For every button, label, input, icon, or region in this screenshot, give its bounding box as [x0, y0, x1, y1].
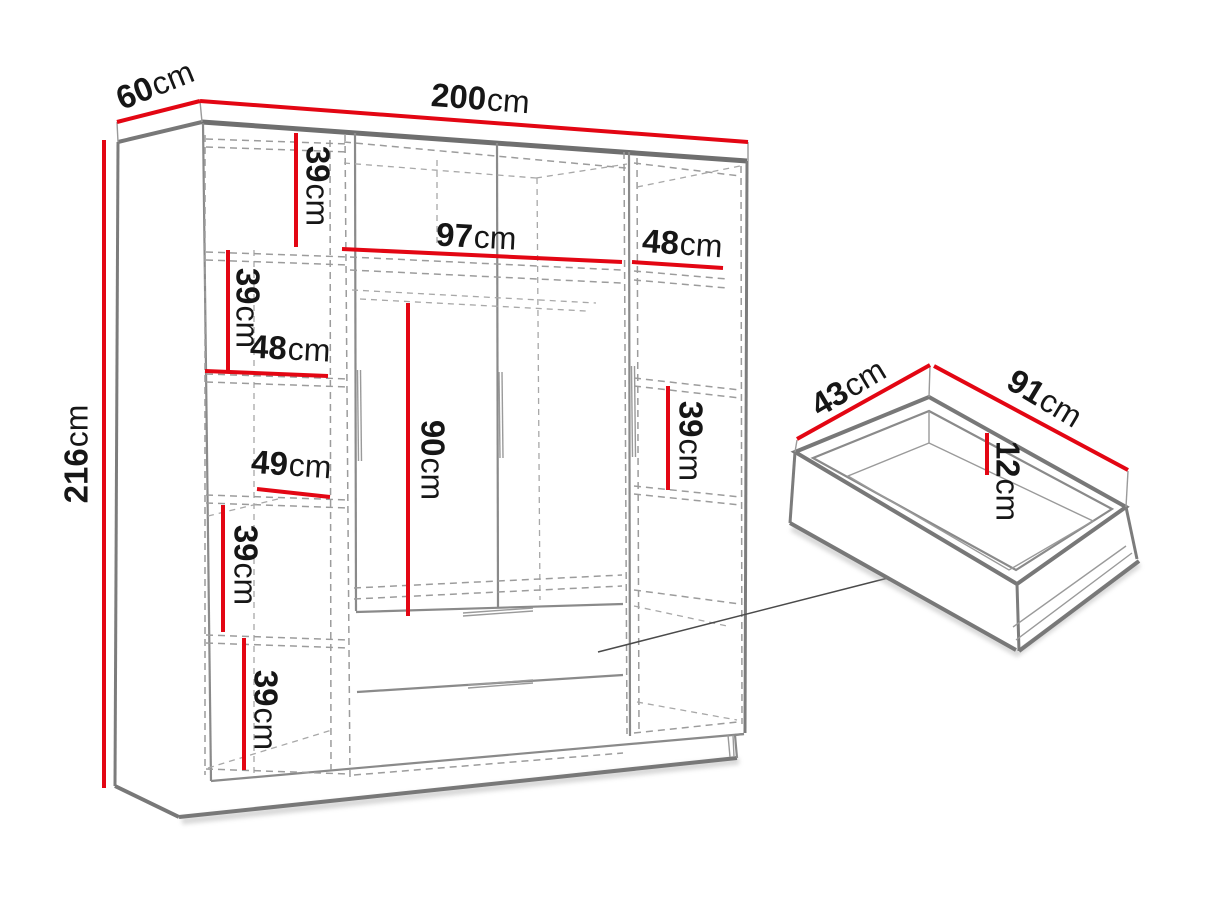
corner-connector	[929, 366, 930, 397]
left-bottom-edge	[115, 786, 179, 817]
left-back-edge	[115, 142, 118, 786]
foot-line	[733, 735, 734, 757]
dim-label-left-gap-4: 39cm	[247, 670, 284, 750]
plinth-step	[735, 735, 737, 758]
foot-line	[728, 735, 730, 757]
svg-text:39cm: 39cm	[247, 670, 284, 750]
svg-text:39cm: 39cm	[227, 525, 264, 605]
plinth-step	[735, 734, 744, 735]
drawer-leader-line	[598, 578, 888, 652]
dim-label-left-width-upper: 48cm	[249, 328, 331, 369]
corner-connector	[1126, 471, 1128, 507]
svg-text:90cm: 90cm	[414, 420, 451, 500]
diagram-canvas: 60cm 200cm 216cm 39cm 97cm 48cm 39cm 48c…	[0, 0, 1214, 911]
dim-line-left-width-lower	[257, 489, 330, 497]
dim-label-depth: 60cm	[111, 52, 199, 116]
wardrobe-shadow	[182, 761, 739, 821]
dim-label-hanging-height: 90cm	[414, 420, 451, 500]
front-right-edge	[745, 161, 747, 733]
drawer-handles	[463, 608, 533, 688]
svg-text:97cm: 97cm	[435, 216, 517, 257]
dim-label-drawer-height: 12cm	[989, 441, 1026, 521]
front-left-edge	[203, 123, 211, 781]
svg-text:48cm: 48cm	[249, 328, 331, 369]
svg-text:216cm: 216cm	[58, 405, 95, 504]
dim-label-left-width-lower: 49cm	[250, 443, 333, 486]
door-gap-line	[497, 143, 498, 608]
door-gap-line	[355, 133, 356, 611]
drawer-silhouette	[790, 397, 1139, 650]
svg-text:49cm: 49cm	[250, 443, 333, 486]
svg-text:48cm: 48cm	[641, 222, 724, 265]
door-gap-line	[629, 152, 630, 736]
svg-text:60cm: 60cm	[111, 52, 199, 116]
wardrobe-dimension-diagram: 60cm 200cm 216cm 39cm 97cm 48cm 39cm 48c…	[0, 0, 1214, 911]
dim-label-right-width: 48cm	[641, 222, 724, 265]
svg-text:12cm: 12cm	[989, 441, 1026, 521]
dim-label-right-gap: 39cm	[672, 401, 709, 481]
dim-label-height: 216cm	[58, 405, 95, 504]
svg-text:39cm: 39cm	[672, 401, 709, 481]
dim-label-width: 200cm	[430, 76, 531, 120]
svg-text:200cm: 200cm	[430, 76, 531, 120]
front-bottom-edge	[211, 734, 744, 781]
dim-label-middle-shelf: 97cm	[435, 216, 517, 257]
dim-label-left-gap-3: 39cm	[227, 525, 264, 605]
top-left-edge	[118, 122, 202, 142]
corner-connector	[117, 122, 118, 142]
front-drawers	[356, 604, 623, 692]
plinth-bottom-edge	[179, 758, 737, 817]
svg-text:39cm: 39cm	[299, 146, 336, 226]
dim-label-left-gap-1: 39cm	[299, 146, 336, 226]
drawer-front-corner-edge	[1017, 584, 1019, 651]
corner-connector	[200, 101, 202, 122]
